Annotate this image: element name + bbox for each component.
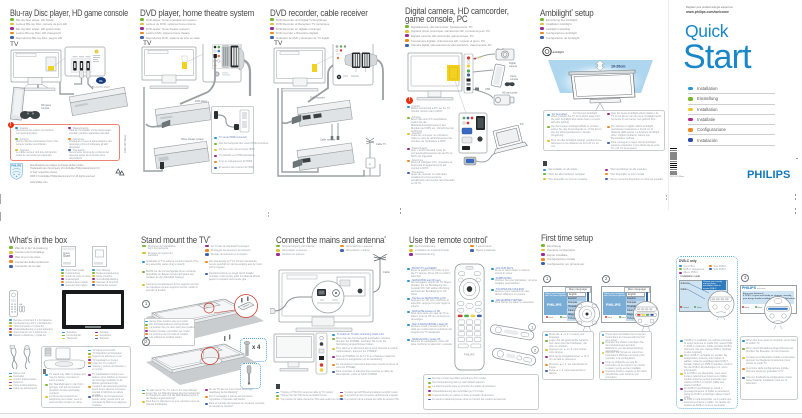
svg-text:10-20cm: 10-20cm — [611, 65, 625, 69]
svg-text:HD camcorder: HD camcorder — [502, 92, 518, 95]
svg-text:PHILIPS: PHILIPS — [464, 352, 475, 356]
svg-text:PHILIPS: PHILIPS — [11, 163, 21, 167]
svg-text:ambilight: ambilight — [553, 50, 564, 54]
svg-text:console: console — [510, 78, 519, 81]
svg-text:console: console — [41, 107, 50, 110]
svg-text:Blu: Blu — [99, 79, 103, 83]
svg-text:AA: AA — [20, 303, 23, 306]
svg-text:USB: USB — [485, 88, 490, 91]
svg-text:Cable: Cable — [383, 270, 390, 274]
svg-text:DVD recorder: DVD recorder — [310, 97, 325, 100]
svg-text:Home theatre system: Home theatre system — [181, 138, 204, 141]
svg-text:PC: PC — [520, 122, 524, 126]
svg-text:Blu-ray Disc player: Blu-ray Disc player — [92, 86, 111, 89]
svg-text:camera: camera — [509, 65, 518, 68]
svg-text:Cable TV: Cable TV — [376, 143, 386, 146]
svg-text:Cable receiver: Cable receiver — [320, 139, 336, 142]
svg-text:Start: Start — [63, 254, 70, 258]
